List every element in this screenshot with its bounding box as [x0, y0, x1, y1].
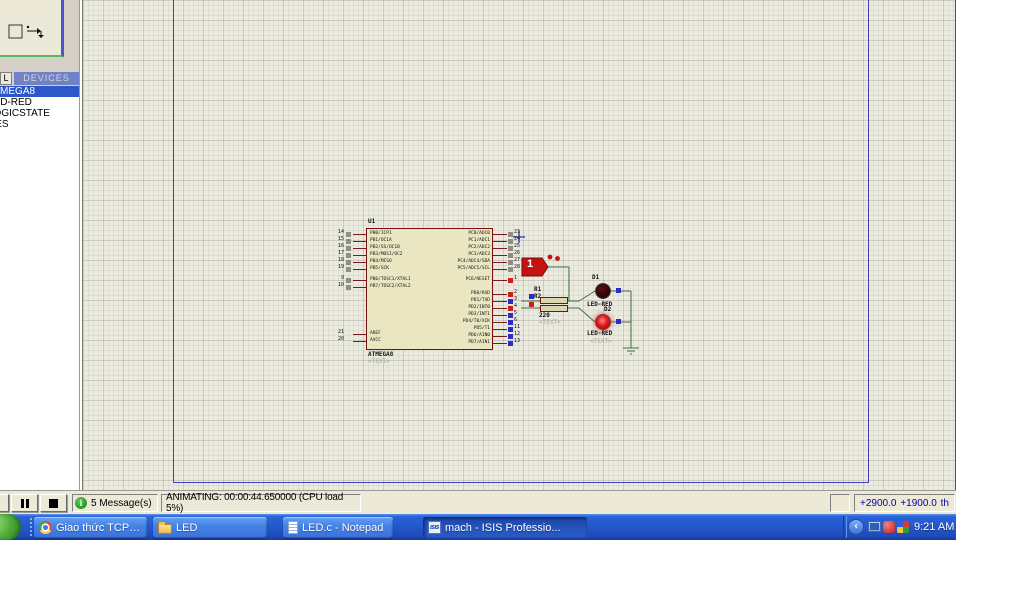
- device-list-item[interactable]: LOGICSTATE: [0, 108, 79, 119]
- pin-label: PD0/RXD: [383, 291, 490, 296]
- led-d2[interactable]: [595, 314, 611, 330]
- led-state-indicator: [616, 288, 621, 293]
- component-preview-pane[interactable]: [0, 0, 64, 57]
- play-button[interactable]: [0, 494, 9, 512]
- pin-state-indicator: [508, 278, 513, 283]
- pin-label: PD7/AIN1: [383, 340, 490, 345]
- start-button[interactable]: [0, 514, 21, 540]
- pin-state-indicator: [346, 267, 351, 272]
- d1-ref-label: D1: [592, 274, 599, 281]
- pin-state-indicator: [346, 260, 351, 265]
- resistor-r1[interactable]: [540, 297, 568, 304]
- taskbar-button-chrome[interactable]: Giao thức TCP/IP và ...: [34, 517, 147, 538]
- pin-label: PD5/T1: [383, 326, 490, 331]
- pin-state-indicator: [508, 246, 513, 251]
- message-info-icon: i: [75, 497, 87, 509]
- pin-stub: [493, 308, 507, 309]
- pin-state-indicator: [346, 239, 351, 244]
- library-tab-button[interactable]: L: [0, 72, 12, 85]
- d2-text-placeholder: <TEXT>: [590, 338, 612, 345]
- pin-state-indicator: [346, 278, 351, 283]
- status-bar: i 5 Message(s) ANIMATING: 00:00:44.65000…: [0, 490, 956, 514]
- pin-label: PD3/INT1: [383, 312, 490, 317]
- device-list: ATMEGA8LED-REDLOGICSTATERES: [0, 86, 79, 130]
- pin-label: PD6/AIN0: [383, 333, 490, 338]
- pin-state-indicator: [508, 292, 513, 297]
- pin-number: 26: [514, 250, 520, 256]
- led-d1[interactable]: [595, 283, 611, 299]
- pin-state-indicator: [508, 313, 513, 318]
- pin-state-indicator: [508, 267, 513, 272]
- d2-part-label: LED-RED: [587, 330, 612, 337]
- pin-number: 14: [328, 229, 344, 235]
- taskbar: ‹ 9:21 AM Giao thức TCP/IP và ...LEDLED.…: [0, 514, 956, 540]
- pin-number: 2: [514, 289, 517, 295]
- pin-number: 12: [514, 331, 520, 337]
- hide-chevron-icon[interactable]: ‹: [848, 519, 864, 535]
- message-panel[interactable]: i 5 Message(s): [72, 494, 158, 512]
- pin-stub: [493, 248, 507, 249]
- pin-number: 24: [514, 236, 520, 242]
- tray-divider: [843, 516, 847, 538]
- pin-stub: [353, 248, 367, 249]
- pin-state-indicator: [508, 320, 513, 325]
- spare-status-panel: [830, 494, 850, 512]
- d2-ref-label: D2: [604, 306, 611, 313]
- stop-icon: [49, 499, 58, 508]
- resistor-text-placeholder: <TEXT>: [539, 319, 561, 326]
- schematic-layer: U1 ATMEGA8 <TEXT> 1 R1 R2 220 <TEXT> D1 …: [83, 0, 956, 490]
- isis-app-window: L DEVICES ATMEGA8LED-REDLOGICSTATERES U1…: [0, 0, 956, 540]
- pin-stub: [353, 262, 367, 263]
- pin-number: 23: [514, 229, 520, 235]
- wire-state-indicator: [529, 302, 534, 307]
- animation-status-text: ANIMATING: 00:00:44.650000 (CPU load 5%): [166, 492, 356, 514]
- pin-stub: [493, 262, 507, 263]
- pin-stub: [493, 280, 507, 281]
- pin-state-indicator: [508, 253, 513, 258]
- pin-number: 11: [514, 324, 520, 330]
- messenger-icon[interactable]: [883, 521, 895, 533]
- pause-button[interactable]: [11, 494, 38, 512]
- notepad-icon: [288, 521, 298, 534]
- pin-stub: [493, 336, 507, 337]
- pin-number: 13: [514, 338, 520, 344]
- pin-stub: [353, 269, 367, 270]
- pin-stub: [493, 234, 507, 235]
- preview-symbol: [8, 22, 48, 44]
- pin-label: PC1/ADC1: [383, 238, 490, 243]
- coordinate-x: +2900.0: [860, 498, 896, 509]
- pin-stub: [353, 341, 367, 342]
- pin-number: 15: [328, 236, 344, 242]
- coordinate-y: +1900.0: [900, 498, 936, 509]
- pin-number: 6: [514, 317, 517, 323]
- pin-state-indicator: [346, 246, 351, 251]
- pin-label: PB7/TOSC2/XTAL2: [370, 284, 411, 289]
- pin-label: PC4/ADC4/SDA: [383, 259, 490, 264]
- pin-state-indicator: [346, 285, 351, 290]
- device-list-item[interactable]: LED-RED: [0, 97, 79, 108]
- pin-label: AVCC: [370, 338, 381, 343]
- device-list-item[interactable]: ATMEGA8: [0, 86, 79, 97]
- schematic-canvas[interactable]: U1 ATMEGA8 <TEXT> 1 R1 R2 220 <TEXT> D1 …: [82, 0, 956, 490]
- pin-stub: [353, 334, 367, 335]
- pin-stub: [353, 287, 367, 288]
- pin-state-indicator: [508, 306, 513, 311]
- pin-label: AREF: [370, 331, 381, 336]
- pin-stub: [493, 343, 507, 344]
- r1-ref-label: R1: [534, 286, 541, 293]
- pin-number: 27: [514, 257, 520, 263]
- message-count: 5 Message(s): [91, 498, 152, 509]
- pin-number: 19: [328, 264, 344, 270]
- mcu-text-placeholder: <TEXT>: [368, 358, 390, 365]
- coordinate-units: th: [941, 498, 949, 509]
- pin-state-indicator: [346, 232, 351, 237]
- led-state-indicator: [616, 319, 621, 324]
- pin-number: 5: [514, 310, 517, 316]
- pin-stub: [353, 241, 367, 242]
- logicstate-value[interactable]: 1: [527, 258, 533, 270]
- pin-number: 25: [514, 243, 520, 249]
- folder-icon: [158, 524, 172, 534]
- object-selector-panel: L DEVICES ATMEGA8LED-REDLOGICSTATERES: [0, 0, 80, 490]
- pin-stub: [493, 241, 507, 242]
- taskbar-button-notepad[interactable]: LED.c - Notepad: [283, 517, 393, 538]
- chrome-icon: [39, 521, 52, 534]
- mcu-part-label: ATMEGA8: [368, 351, 393, 358]
- coordinates-panel: +2900.0 +1900.0 th: [854, 494, 955, 512]
- mcu-ref-label: U1: [368, 218, 375, 225]
- pin-number: 10: [328, 282, 344, 288]
- pin-stub: [493, 269, 507, 270]
- taskbar-button-label: LED: [176, 522, 197, 534]
- pin-label: PC3/ADC3: [383, 252, 490, 257]
- resistor-r2[interactable]: [540, 305, 568, 312]
- stop-button[interactable]: [40, 494, 67, 512]
- logicstate-toggle-dot[interactable]: [548, 255, 553, 260]
- pin-state-indicator: [346, 253, 351, 258]
- taskbar-button-label: LED.c - Notepad: [302, 522, 383, 534]
- pin-number: 3: [514, 296, 517, 302]
- pause-icon: [21, 499, 24, 508]
- network-icon[interactable]: [868, 521, 881, 532]
- pin-stub: [493, 329, 507, 330]
- pin-number: 16: [328, 243, 344, 249]
- pin-number: 17: [328, 250, 344, 256]
- pin-state-indicator: [508, 334, 513, 339]
- pin-label: PC2/ADC2: [383, 245, 490, 250]
- pin-state-indicator: [508, 299, 513, 304]
- logicstate-toggle-dot[interactable]: [555, 256, 560, 261]
- pin-stub: [493, 322, 507, 323]
- pin-label: PC0/ADC0: [383, 231, 490, 236]
- pin-state-indicator: [508, 232, 513, 237]
- pin-number: 20: [328, 336, 344, 342]
- pin-number: 4: [514, 303, 517, 309]
- screen: L DEVICES ATMEGA8LED-REDLOGICSTATERES U1…: [0, 0, 1024, 614]
- pin-state-indicator: [508, 239, 513, 244]
- pin-label: PC6/RESET: [383, 277, 490, 282]
- animation-status-panel: ANIMATING: 00:00:44.650000 (CPU load 5%): [161, 494, 361, 512]
- pin-state-indicator: [508, 327, 513, 332]
- device-list-item[interactable]: RES: [0, 119, 79, 130]
- logicstate-symbol[interactable]: [522, 258, 548, 276]
- antivirus-icon[interactable]: [897, 521, 909, 533]
- pin-label: PD2/INT0: [383, 305, 490, 310]
- r2-ref-label: R2: [534, 293, 541, 300]
- pin-number: 9: [328, 275, 344, 281]
- isis-icon: [428, 521, 441, 534]
- pin-label: PC5/ADC5/SCL: [383, 266, 490, 271]
- resistor-value-label: 220: [539, 312, 550, 319]
- pin-stub: [353, 234, 367, 235]
- devices-header: DEVICES: [14, 72, 79, 85]
- pin-stub: [493, 301, 507, 302]
- pin-number: 18: [328, 257, 344, 263]
- pin-label: PD1/TXD: [383, 298, 490, 303]
- pin-stub: [493, 255, 507, 256]
- taskbar-button-folder[interactable]: LED: [153, 517, 267, 538]
- pin-number: 1: [514, 275, 517, 281]
- pin-label: PD4/T0/XCK: [383, 319, 490, 324]
- pin-stub: [353, 255, 367, 256]
- taskbar-button-isis[interactable]: mach - ISIS Professio...: [423, 517, 587, 538]
- pin-stub: [493, 315, 507, 316]
- wire-state-indicator: [529, 294, 534, 299]
- pin-number: 21: [328, 329, 344, 335]
- taskbar-button-label: Giao thức TCP/IP và ...: [56, 522, 142, 534]
- pin-stub: [353, 280, 367, 281]
- pin-number: 28: [514, 264, 520, 270]
- pin-stub: [493, 294, 507, 295]
- taskbar-button-label: mach - ISIS Professio...: [445, 522, 561, 534]
- pin-state-indicator: [508, 341, 513, 346]
- tray-clock: 9:21 AM: [914, 514, 954, 540]
- pin-state-indicator: [508, 260, 513, 265]
